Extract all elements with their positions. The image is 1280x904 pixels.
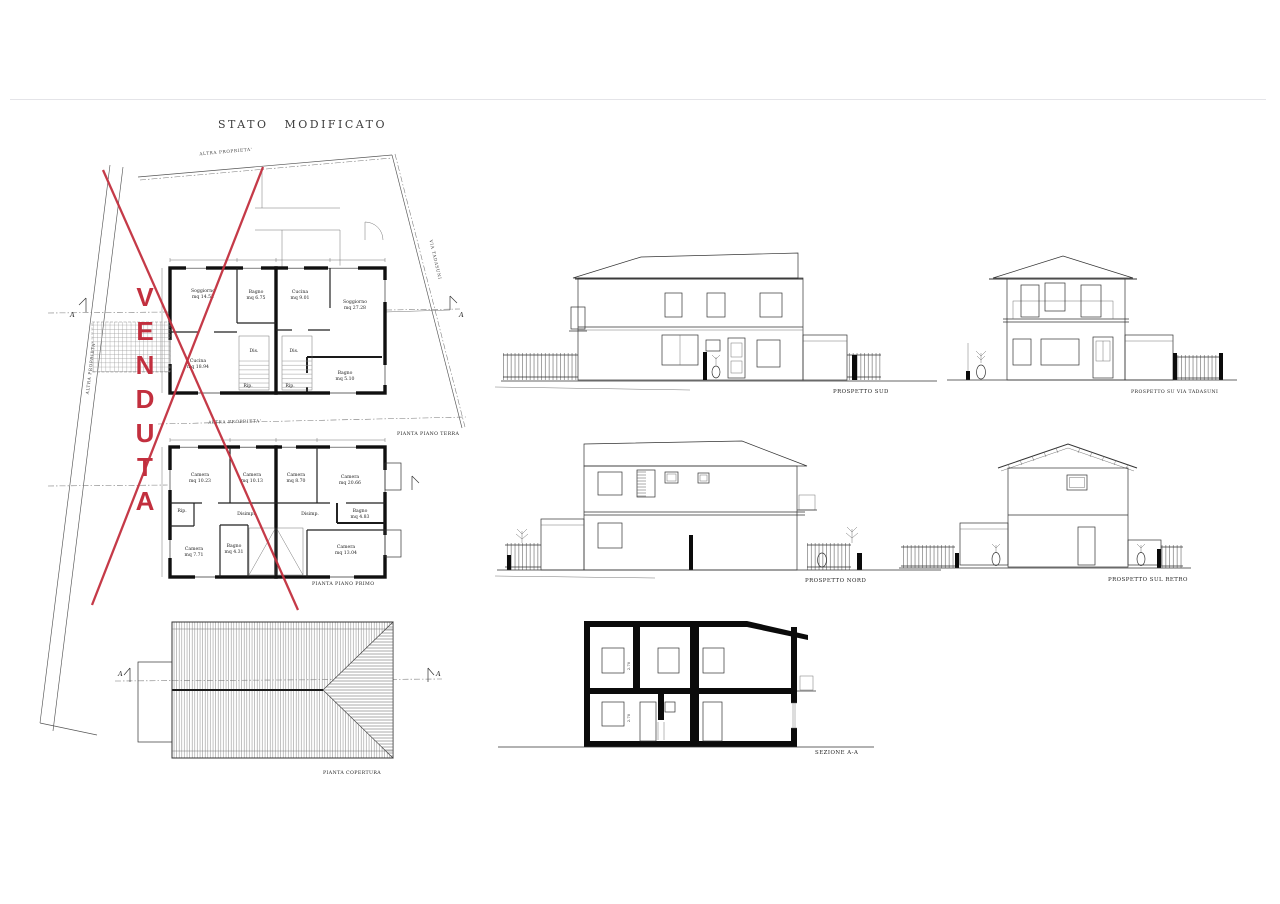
room-cucina-sx: Cucina: [190, 358, 206, 364]
rear-fences: [899, 544, 1191, 568]
first-floor-plan: Camera mq 10.23 Camera mq 10.13 Camera m…: [48, 438, 419, 587]
room-bagno-sx: Bagno: [249, 289, 264, 295]
north-building: [541, 441, 817, 570]
street-fences: [947, 343, 1237, 380]
room-camera-5: Camera: [185, 546, 204, 552]
section-dim-upper: 2.70: [626, 661, 631, 670]
room-camera-1-area: mq 10.23: [189, 478, 211, 484]
ff-room-labels: Camera mq 10.23 Camera mq 10.13 Camera m…: [177, 472, 369, 558]
room-bagno-dx-ff: Bagno: [353, 508, 368, 514]
elevation-rear-drawing: PROSPETTO SUL RETRO: [895, 435, 1245, 590]
room-dis-sx: Dis.: [250, 348, 260, 354]
room-camera-6-area: mq 13.04: [335, 550, 357, 556]
room-cucina-dx-area: mq 9.01: [291, 295, 310, 301]
roof-marker-a-left: A: [117, 670, 123, 678]
elevation-south-drawing: PROSPETTO SUD: [495, 245, 945, 400]
room-cucina-dx: Cucina: [292, 289, 308, 295]
top-rule: [10, 99, 1266, 100]
section-marker-a-right: A: [458, 311, 464, 319]
room-soggiorno-dx-area: mq 27.28: [344, 305, 366, 311]
drawing-sheet: STATO MODIFICATO ALTRA PROPRIETA' ALTRA …: [0, 0, 1280, 904]
room-camera-1: Camera: [191, 472, 210, 478]
room-bagno-sx-ff-area: mq 4.31: [225, 549, 244, 555]
roof-plan: A A PIANTA COPERTURA: [115, 622, 442, 776]
room-camera-4-area: mq 20.66: [339, 480, 361, 486]
caption-pianta-piano-primo: PIANTA PIANO PRIMO: [312, 581, 374, 587]
room-bagno-sx-ff: Bagno: [227, 543, 242, 549]
site-plan-drawing: ALTRA PROPRIETA' ALTRA PROPRIETA' ALTRA …: [30, 140, 475, 795]
north-fences: [495, 527, 941, 578]
room-bagno-dx: Bagno: [338, 370, 353, 376]
room-camera-5-area: mq 7.71: [185, 552, 204, 558]
room-rip-sx: Rip.: [243, 383, 253, 389]
roof-marker-a-right: A: [435, 670, 441, 678]
room-dis-dx: Dis.: [290, 348, 300, 354]
caption-pianta-copertura: PIANTA COPERTURA: [323, 770, 381, 776]
room-disimp-sx: Disimp.: [237, 511, 255, 517]
south-building: [569, 253, 847, 380]
caption-sezione: SEZIONE A-A: [815, 750, 858, 756]
room-camera-2: Camera: [243, 472, 262, 478]
section-structure: [584, 621, 808, 747]
elevation-north-drawing: PROSPETTO NORD: [495, 435, 945, 590]
room-camera-3: Camera: [287, 472, 306, 478]
room-bagno-sx-area: mq 6.75: [247, 295, 266, 301]
caption-pianta-piano-terra: PIANTA PIANO TERRA: [397, 431, 459, 437]
room-rip: Rip.: [177, 508, 187, 514]
room-bagno-dx-area: mq 5.10: [336, 376, 355, 382]
room-camera-2-area: mq 10.13: [241, 478, 263, 484]
room-disimp-dx: Disimp.: [301, 511, 319, 517]
section-dim-lower: 2.70: [626, 713, 631, 722]
caption-prospetto-via: PROSPETTO SU VIA TADASUNI: [1131, 389, 1218, 395]
caption-prospetto-nord: PROSPETTO NORD: [805, 578, 866, 584]
section-marker-a-left: A: [69, 311, 75, 319]
section-drawing: 2.70 2.70 SEZIONE A-A: [490, 600, 880, 770]
room-camera-6: Camera: [337, 544, 356, 550]
room-soggiorno-dx: Soggiorno: [343, 299, 367, 305]
street-building: [989, 256, 1173, 380]
elevation-street-drawing: PROSPETTO SU VIA TADASUNI: [945, 245, 1245, 400]
room-camera-4: Camera: [341, 474, 360, 480]
room-bagno-dx-ff-area: mq 4.83: [351, 514, 370, 520]
sheet-title: STATO MODIFICATO: [218, 118, 387, 131]
caption-prospetto-retro: PROSPETTO SUL RETRO: [1108, 577, 1188, 583]
caption-prospetto-sud: PROSPETTO SUD: [833, 389, 889, 395]
label-via-tadasuni: VIA TADASUNI: [427, 238, 441, 280]
label-altra-proprieta-top: ALTRA PROPRIETA': [198, 148, 253, 158]
room-soggiorno-sx: Soggiorno: [191, 288, 215, 294]
room-camera-3-area: mq 8.70: [287, 478, 306, 484]
room-rip-dx: Rip.: [285, 383, 295, 389]
rear-building: [960, 444, 1161, 567]
venduta-overlay-text: VENDUTA: [132, 282, 158, 502]
